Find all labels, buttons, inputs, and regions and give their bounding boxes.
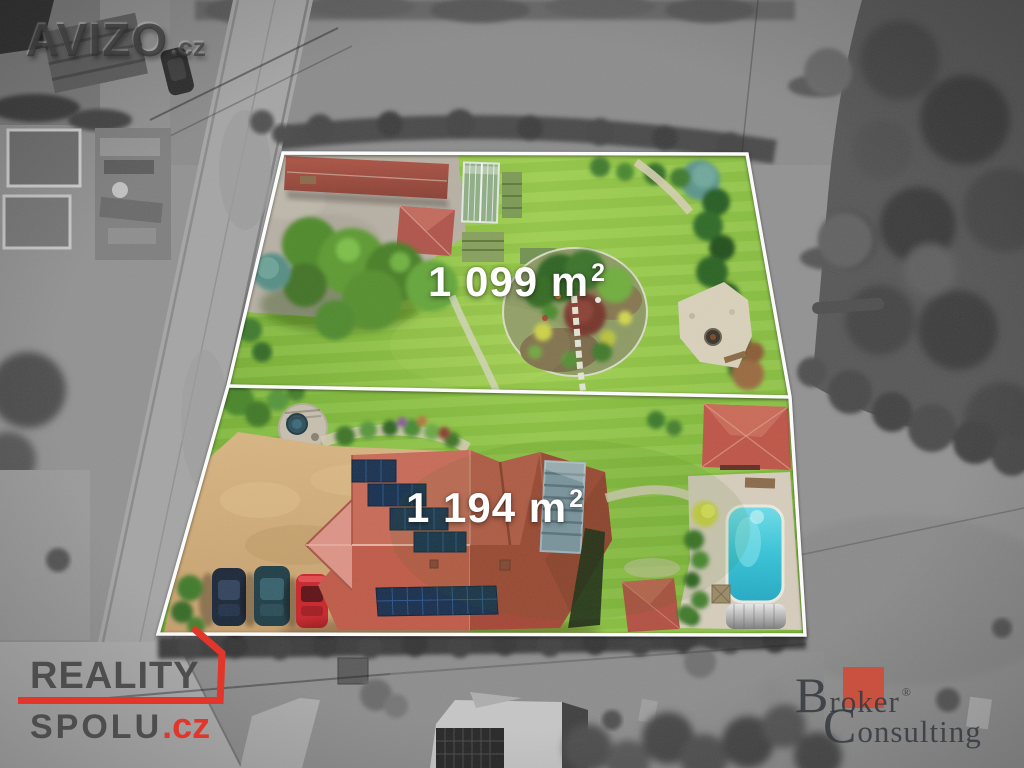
underline-accent bbox=[18, 697, 222, 704]
reality-spolu-watermark: REALITY SPOLU.cz bbox=[14, 620, 254, 768]
reality-tld: .cz bbox=[162, 705, 210, 746]
broker-logo-line2: Consulting bbox=[823, 700, 982, 750]
reality-logo-line1: REALITY bbox=[30, 657, 200, 695]
lower-area-superscript: 2 bbox=[569, 485, 584, 513]
broker-consulting-watermark: Broker® Consulting bbox=[793, 664, 1024, 764]
reality-logo-line2: SPOLU.cz bbox=[30, 708, 210, 744]
avizo-watermark: AVIZO.cz bbox=[26, 17, 206, 63]
upper-plot-area-label: 1 099 m2 bbox=[428, 261, 606, 303]
aerial-photo: 1 099 m2 1 194 m2 AVIZO.cz REALITY SPOLU… bbox=[0, 0, 1024, 768]
lower-plot-area-label: 1 194 m2 bbox=[406, 487, 584, 529]
avizo-tld: .cz bbox=[171, 32, 206, 62]
avizo-logo-text: AVIZO bbox=[26, 14, 168, 66]
upper-area-value: 1 099 m bbox=[428, 258, 589, 305]
lower-area-value: 1 194 m bbox=[406, 484, 567, 531]
upper-area-superscript: 2 bbox=[591, 259, 606, 287]
registered-mark: ® bbox=[902, 685, 912, 700]
